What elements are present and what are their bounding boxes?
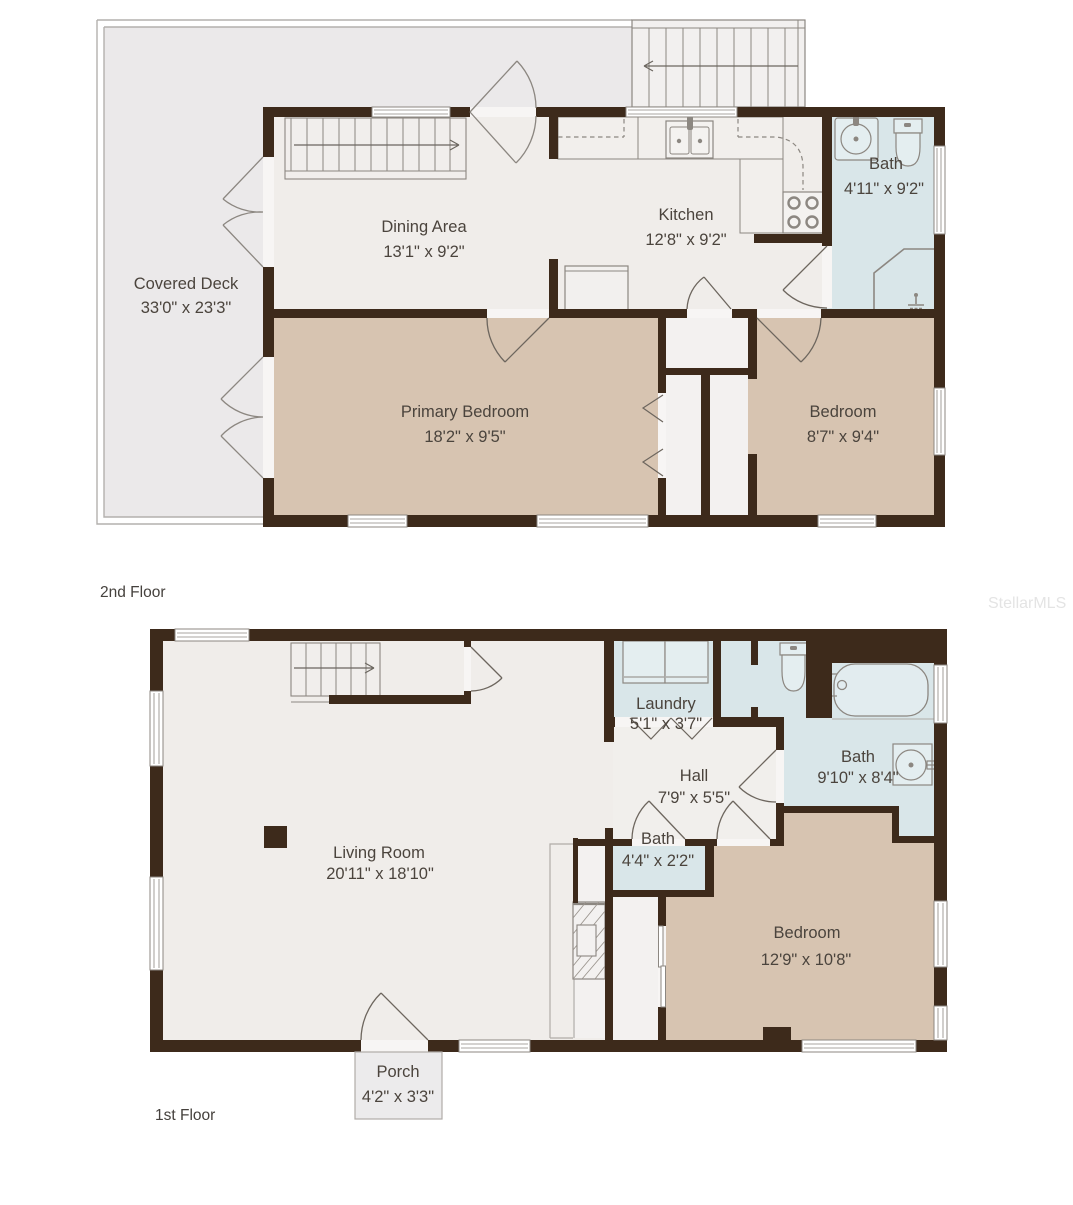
svg-text:Laundry: Laundry <box>636 695 696 713</box>
svg-text:Kitchen: Kitchen <box>658 206 713 224</box>
svg-text:4'11" x 9'2": 4'11" x 9'2" <box>844 180 924 198</box>
svg-text:2nd Floor: 2nd Floor <box>100 584 165 601</box>
svg-text:Porch: Porch <box>376 1063 419 1081</box>
svg-text:12'8" x 9'2": 12'8" x 9'2" <box>645 231 726 249</box>
svg-text:Bath: Bath <box>869 155 903 173</box>
svg-text:Bedroom: Bedroom <box>774 924 841 942</box>
svg-text:7'9" x 5'5": 7'9" x 5'5" <box>658 789 730 807</box>
svg-text:18'2" x 9'5": 18'2" x 9'5" <box>424 428 505 446</box>
svg-text:Primary Bedroom: Primary Bedroom <box>401 403 529 421</box>
svg-text:Bath: Bath <box>641 830 675 848</box>
svg-text:13'1" x 9'2": 13'1" x 9'2" <box>383 243 464 261</box>
svg-text:4'2" x 3'3": 4'2" x 3'3" <box>362 1088 434 1106</box>
svg-text:8'7" x 9'4": 8'7" x 9'4" <box>807 428 879 446</box>
svg-text:12'9" x 10'8": 12'9" x 10'8" <box>761 951 852 969</box>
svg-text:4'4" x 2'2": 4'4" x 2'2" <box>622 852 694 870</box>
svg-text:9'10" x 8'4": 9'10" x 8'4" <box>817 769 898 787</box>
svg-text:Bedroom: Bedroom <box>810 403 877 421</box>
svg-text:Covered Deck: Covered Deck <box>134 275 239 293</box>
svg-text:5'1" x 3'7": 5'1" x 3'7" <box>630 715 702 733</box>
svg-text:20'11" x 18'10": 20'11" x 18'10" <box>326 865 434 883</box>
svg-text:Bath: Bath <box>841 748 875 766</box>
svg-text:1st Floor: 1st Floor <box>155 1107 215 1124</box>
svg-text:Dining Area: Dining Area <box>381 218 467 236</box>
svg-text:Hall: Hall <box>680 767 708 785</box>
svg-text:Living Room: Living Room <box>333 844 425 862</box>
svg-text:StellarMLS: StellarMLS <box>988 595 1066 612</box>
svg-text:33'0" x 23'3": 33'0" x 23'3" <box>141 299 232 317</box>
